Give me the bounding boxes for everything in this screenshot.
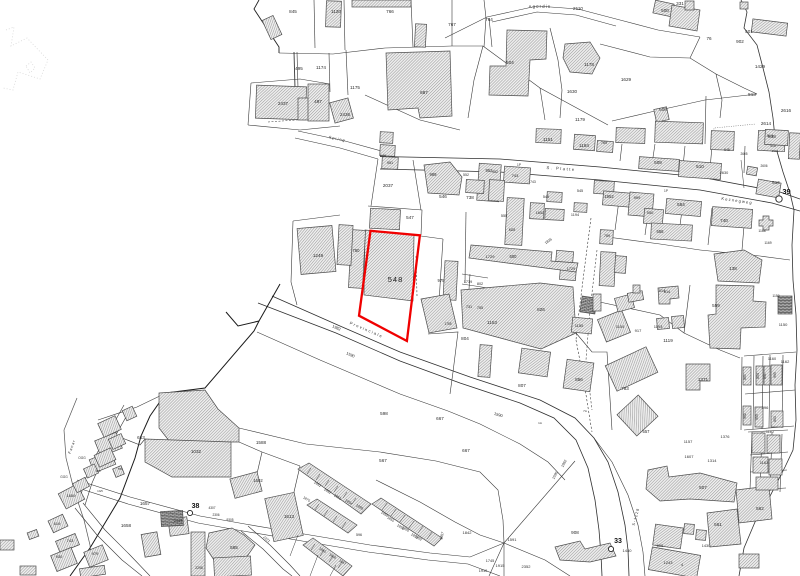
- svg-text:1179: 1179: [575, 117, 585, 122]
- svg-text:1A: 1A: [538, 421, 542, 425]
- svg-text:902: 902: [736, 39, 744, 44]
- svg-text:979: 979: [92, 551, 99, 556]
- svg-text:2616: 2616: [781, 108, 792, 113]
- svg-text:2436: 2436: [340, 112, 351, 117]
- svg-text:509: 509: [654, 160, 662, 165]
- svg-text:854: 854: [756, 373, 760, 379]
- svg-text:2605: 2605: [740, 152, 747, 156]
- svg-text:1755: 1755: [444, 322, 451, 326]
- svg-text:1952: 1952: [604, 194, 614, 199]
- svg-text:1032: 1032: [191, 449, 202, 454]
- svg-text:646: 646: [380, 154, 386, 158]
- svg-text:743: 743: [67, 538, 74, 543]
- svg-text:1842: 1842: [463, 530, 473, 535]
- svg-text:663: 663: [137, 435, 145, 440]
- svg-text:743: 743: [530, 180, 536, 184]
- svg-text:783: 783: [621, 386, 629, 391]
- svg-text:802: 802: [477, 282, 483, 286]
- svg-text:952: 952: [492, 170, 498, 174]
- svg-text:1120: 1120: [331, 9, 341, 14]
- svg-text:600: 600: [510, 254, 518, 259]
- svg-text:1630: 1630: [567, 89, 578, 94]
- svg-text:989: 989: [430, 172, 438, 177]
- svg-text:2614: 2614: [761, 121, 772, 126]
- svg-text:853: 853: [773, 416, 777, 422]
- svg-text:1429: 1429: [755, 64, 766, 69]
- svg-text:2110: 2110: [573, 6, 583, 11]
- svg-text:856: 856: [575, 377, 583, 382]
- svg-text:1910: 1910: [479, 569, 487, 573]
- svg-text:596: 596: [356, 533, 362, 537]
- svg-text:1729: 1729: [567, 267, 575, 271]
- svg-text:2443: 2443: [174, 519, 182, 523]
- svg-text:OGG: OGG: [78, 456, 86, 460]
- svg-text:516: 516: [772, 180, 780, 185]
- svg-text:546: 546: [439, 194, 447, 199]
- svg-text:1160: 1160: [768, 357, 776, 361]
- svg-text:33: 33: [614, 538, 622, 545]
- svg-text:585: 585: [230, 545, 238, 550]
- svg-text:1157: 1157: [684, 439, 693, 444]
- svg-text:138: 138: [729, 266, 737, 271]
- svg-text:1591: 1591: [508, 537, 518, 542]
- svg-text:507: 507: [699, 485, 707, 490]
- svg-text:545: 545: [577, 189, 583, 193]
- svg-text:1169: 1169: [764, 241, 771, 245]
- svg-text:1659: 1659: [67, 493, 77, 498]
- svg-text:1657: 1657: [140, 501, 151, 506]
- svg-text:995: 995: [773, 372, 777, 378]
- svg-text:2352: 2352: [522, 564, 532, 569]
- svg-text:1607: 1607: [685, 454, 695, 459]
- svg-text:554: 554: [677, 202, 685, 207]
- svg-text:826: 826: [537, 307, 545, 312]
- svg-text:1119: 1119: [663, 338, 673, 343]
- svg-text:807: 807: [518, 383, 526, 388]
- svg-text:845: 845: [289, 9, 297, 14]
- svg-text:497: 497: [314, 99, 322, 104]
- svg-text:769: 769: [601, 141, 607, 145]
- svg-text:687: 687: [420, 90, 428, 95]
- svg-text:1153: 1153: [487, 320, 497, 325]
- svg-text:1174: 1174: [316, 65, 326, 70]
- svg-text:1314: 1314: [708, 458, 718, 463]
- svg-text:1729: 1729: [486, 254, 496, 259]
- svg-text:555: 555: [501, 214, 507, 218]
- svg-text:9305: 9305: [226, 518, 233, 522]
- svg-text:2630: 2630: [720, 171, 728, 175]
- svg-text:860: 860: [743, 374, 747, 380]
- svg-text:764: 764: [485, 17, 493, 22]
- svg-text:4: 4: [681, 563, 683, 567]
- svg-text:1243: 1243: [664, 560, 674, 565]
- svg-text:1175: 1175: [350, 85, 360, 90]
- svg-text:1440: 1440: [623, 548, 633, 553]
- svg-text:1430: 1430: [702, 544, 710, 548]
- svg-text:559: 559: [712, 303, 720, 308]
- svg-text:755: 755: [477, 306, 483, 310]
- svg-text:1162: 1162: [781, 359, 790, 364]
- svg-text:M28: M28: [509, 228, 516, 232]
- svg-text:2615: 2615: [772, 149, 779, 153]
- svg-text:545: 545: [724, 148, 730, 152]
- svg-text:547: 547: [406, 215, 414, 220]
- svg-text:814: 814: [664, 290, 670, 294]
- svg-text:1739: 1739: [464, 280, 472, 284]
- svg-text:731: 731: [466, 305, 472, 309]
- svg-text:1652: 1652: [536, 211, 544, 215]
- svg-text:549: 549: [543, 195, 549, 199]
- svg-text:2306: 2306: [212, 513, 219, 517]
- svg-text:992: 992: [743, 413, 747, 419]
- svg-text:667: 667: [462, 448, 470, 453]
- svg-text:39: 39: [782, 187, 790, 196]
- svg-text:504: 504: [506, 60, 514, 65]
- svg-text:750: 750: [353, 248, 361, 253]
- svg-text:38: 38: [192, 503, 200, 510]
- svg-text:789: 789: [604, 234, 610, 238]
- svg-text:501: 501: [745, 29, 753, 34]
- svg-text:562: 562: [756, 506, 764, 511]
- svg-text:GGG: GGG: [60, 475, 68, 479]
- svg-text:740: 740: [720, 218, 728, 223]
- svg-text:510: 510: [696, 164, 704, 169]
- svg-text:1P: 1P: [664, 189, 668, 193]
- svg-text:550: 550: [647, 210, 654, 215]
- svg-text:908: 908: [571, 530, 579, 535]
- svg-text:1194: 1194: [571, 213, 579, 217]
- svg-text:1155: 1155: [575, 323, 584, 328]
- svg-text:1168: 1168: [758, 229, 765, 233]
- svg-text:508: 508: [659, 107, 667, 112]
- svg-text:495: 495: [295, 66, 303, 71]
- svg-text:1150: 1150: [779, 322, 788, 327]
- svg-text:1915: 1915: [496, 563, 506, 568]
- svg-text:567: 567: [379, 458, 387, 463]
- svg-text:2037: 2037: [383, 183, 394, 188]
- svg-text:955: 955: [755, 414, 759, 420]
- svg-text:1193: 1193: [654, 324, 663, 329]
- svg-text:1588: 1588: [256, 440, 267, 445]
- svg-text:1602: 1602: [253, 478, 263, 483]
- svg-text:1745: 1745: [486, 559, 494, 563]
- svg-text:556: 556: [657, 229, 665, 234]
- svg-text:1376: 1376: [721, 434, 731, 439]
- svg-text:1371: 1371: [698, 377, 709, 382]
- svg-text:619: 619: [54, 521, 61, 526]
- svg-text:548: 548: [388, 275, 404, 284]
- svg-text:975: 975: [438, 278, 446, 283]
- svg-text:76: 76: [706, 36, 712, 41]
- svg-text:552: 552: [463, 173, 469, 177]
- svg-text:515: 515: [770, 144, 776, 148]
- svg-text:930: 930: [56, 554, 63, 559]
- svg-text:2606: 2606: [760, 164, 767, 168]
- svg-text:1163: 1163: [760, 460, 769, 465]
- svg-text:767: 767: [448, 22, 456, 27]
- svg-text:766: 766: [386, 9, 394, 14]
- svg-text:331: 331: [676, 1, 684, 6]
- svg-text:1178: 1178: [584, 62, 594, 67]
- svg-text:1249: 1249: [313, 253, 324, 258]
- svg-text:743: 743: [512, 173, 519, 178]
- svg-text:851: 851: [763, 373, 767, 379]
- svg-text:1629: 1629: [621, 77, 632, 82]
- svg-text:951: 951: [387, 161, 393, 165]
- svg-text:1184: 1184: [579, 143, 589, 148]
- svg-text:4307: 4307: [208, 506, 215, 510]
- svg-text:2437: 2437: [278, 101, 289, 106]
- svg-text:780: 780: [117, 467, 122, 471]
- svg-text:999: 999: [634, 195, 641, 200]
- svg-text:596: 596: [762, 405, 769, 410]
- svg-text:1658: 1658: [121, 523, 132, 528]
- svg-text:1G5: 1G5: [97, 489, 103, 493]
- svg-text:667: 667: [436, 416, 444, 421]
- svg-text:605: 605: [657, 543, 664, 548]
- svg-text:199: 199: [95, 469, 100, 473]
- svg-text:1P: 1P: [517, 163, 521, 167]
- svg-text:514: 514: [767, 133, 774, 138]
- svg-text:7A: 7A: [583, 409, 587, 413]
- svg-text:1150: 1150: [772, 294, 779, 298]
- svg-text:1613: 1613: [284, 514, 295, 519]
- svg-text:561: 561: [714, 522, 722, 527]
- svg-text:804: 804: [461, 336, 469, 341]
- svg-text:557: 557: [643, 429, 651, 434]
- svg-text:598: 598: [380, 411, 388, 416]
- svg-text:1154: 1154: [616, 324, 625, 329]
- svg-text:500: 500: [661, 8, 669, 13]
- svg-text:1162: 1162: [766, 430, 774, 434]
- svg-text:1151: 1151: [543, 137, 553, 142]
- svg-text:Agordin: Agordin: [529, 4, 552, 9]
- svg-text:738: 738: [466, 195, 474, 200]
- svg-text:2298: 2298: [195, 566, 203, 570]
- svg-text:917: 917: [635, 328, 642, 333]
- svg-text:513: 513: [748, 92, 756, 97]
